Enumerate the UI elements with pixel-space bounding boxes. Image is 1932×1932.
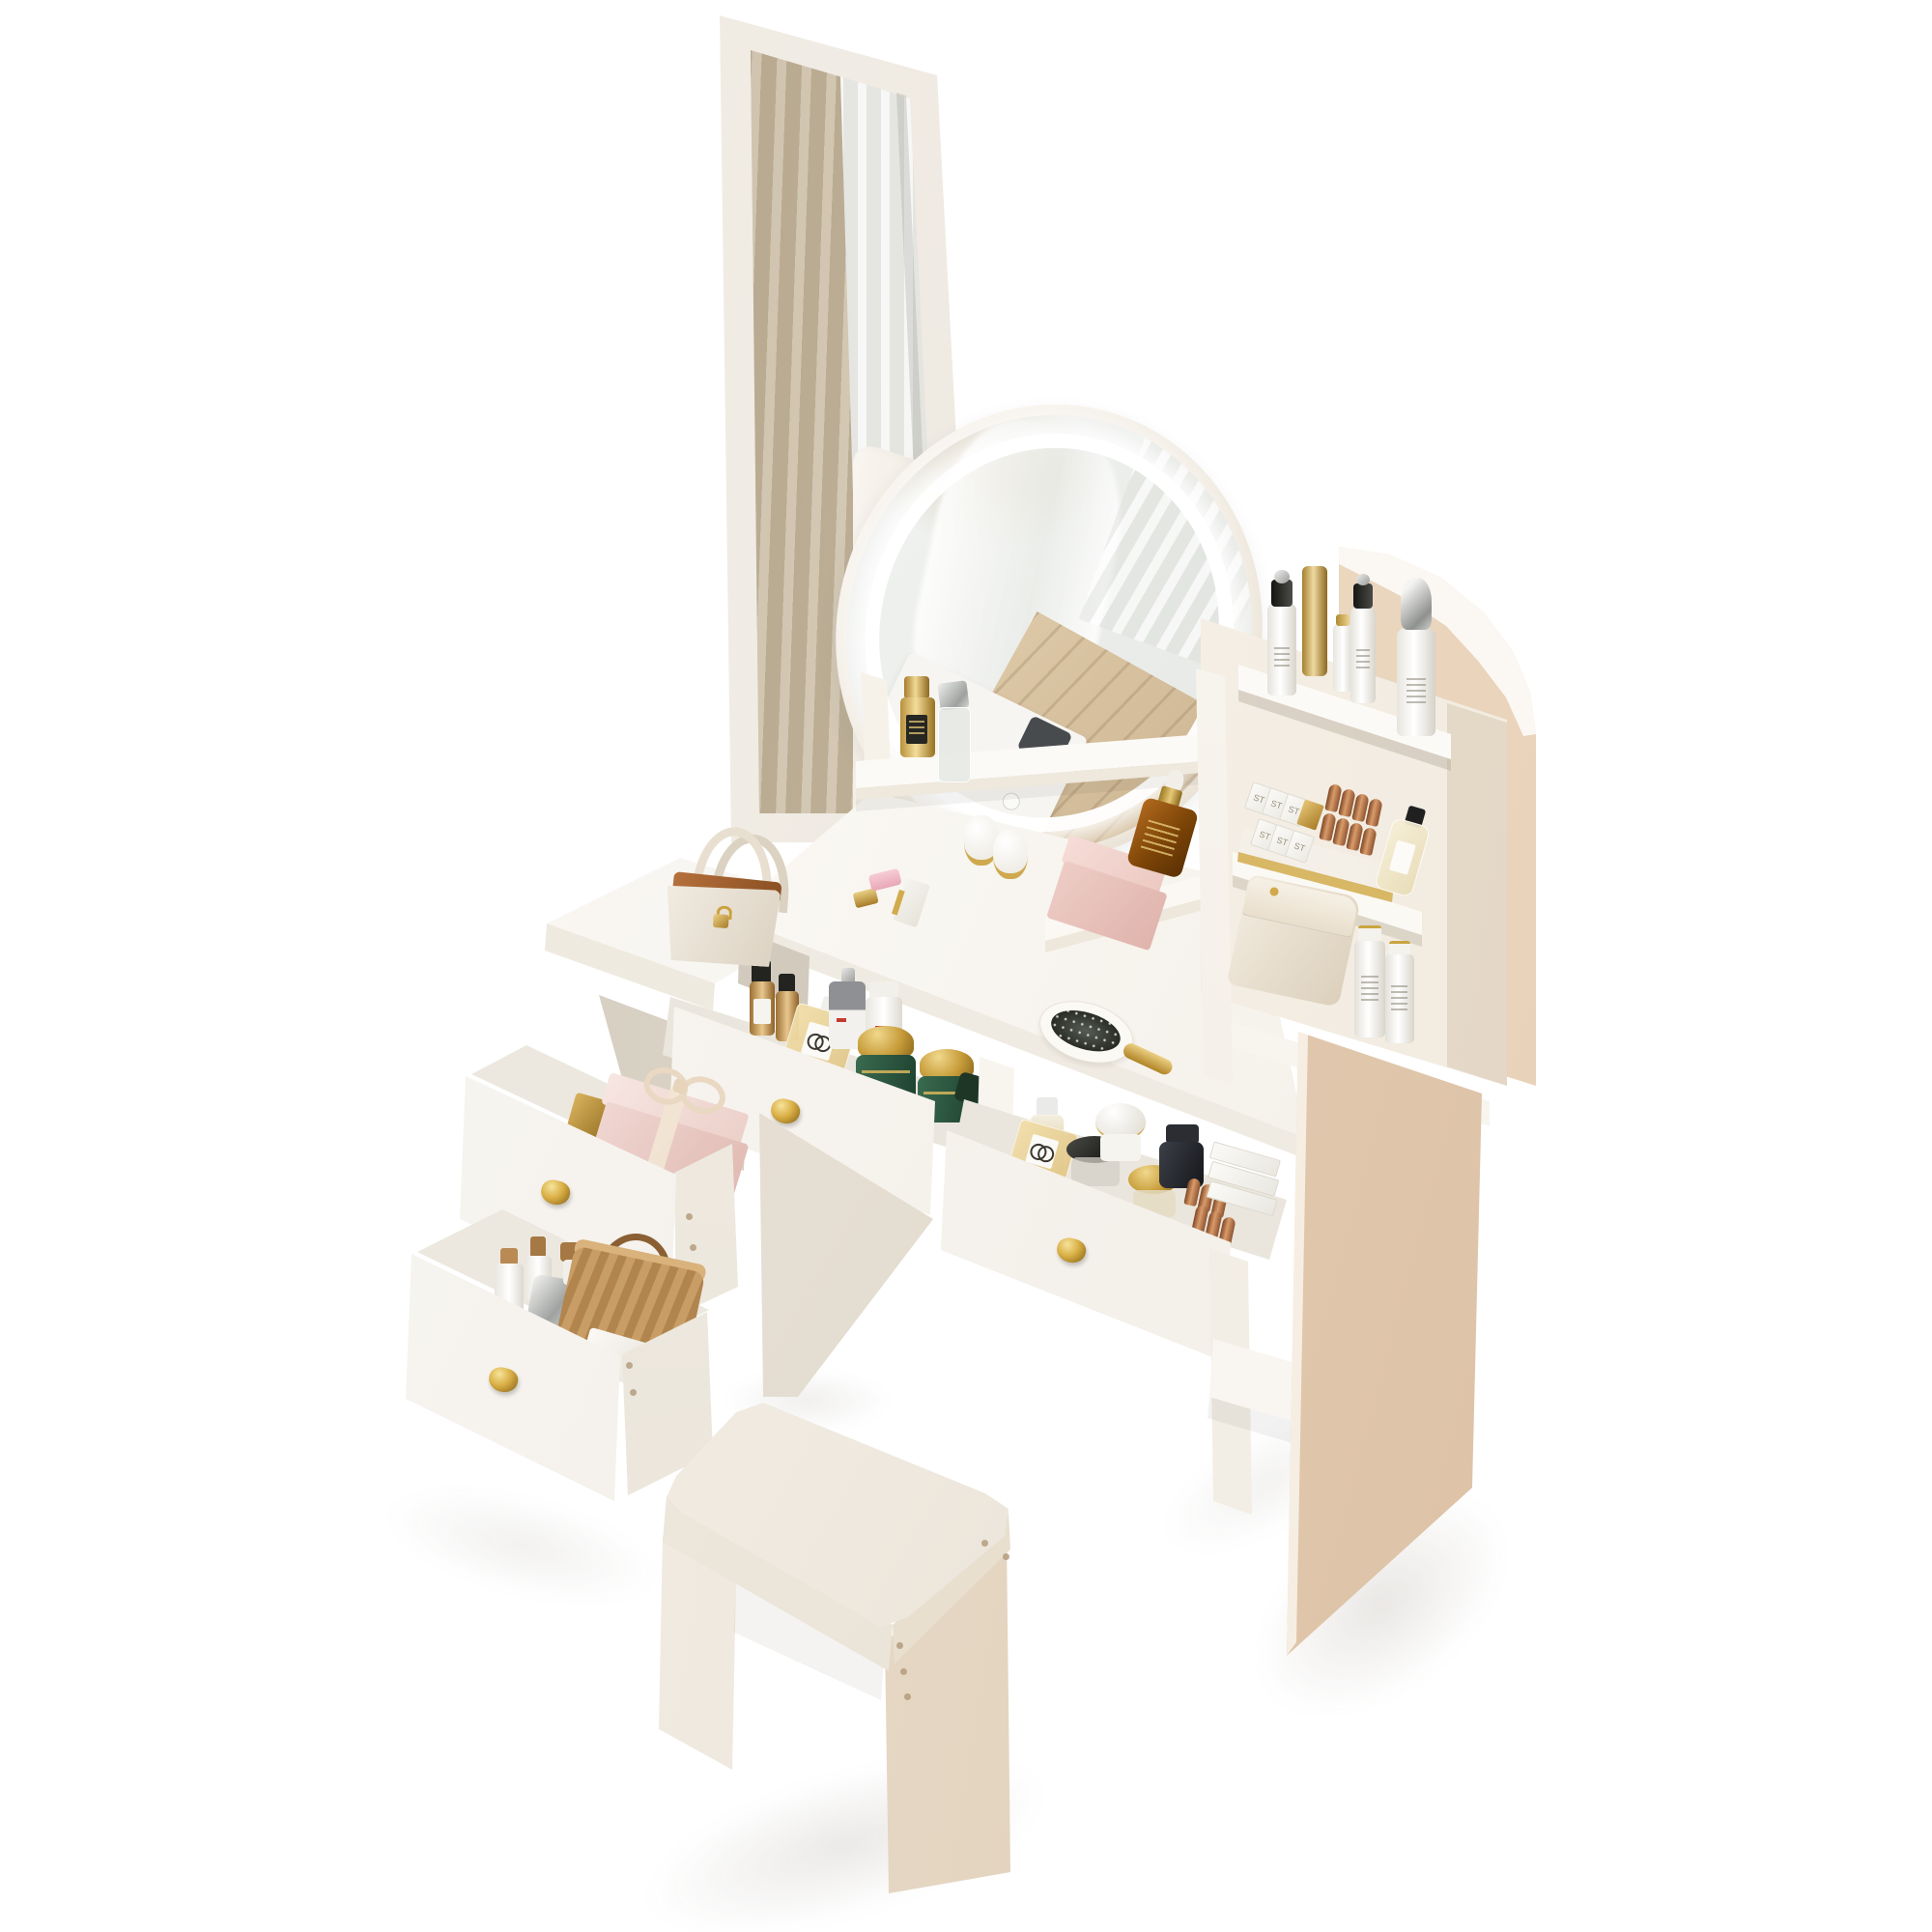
stool-frame-right bbox=[0, 0, 1932, 1932]
red-label-mark bbox=[837, 1018, 846, 1022]
cap bbox=[904, 676, 929, 699]
middle-drawer-front bbox=[0, 0, 1932, 1932]
left-upper-drawer-interior bbox=[0, 0, 1932, 1932]
leather-pouch bbox=[1226, 874, 1363, 1011]
lipstick-box-label: ST bbox=[1258, 829, 1271, 841]
left-cabinet-top-edge bbox=[0, 0, 1932, 1932]
floor-shadow-stool bbox=[606, 1708, 1085, 1932]
white-spray-bottle bbox=[1385, 941, 1414, 1043]
desk-left-cubby bbox=[0, 0, 1932, 1932]
right-drawer-knob bbox=[1054, 1236, 1088, 1266]
floor-shadow-center-leg bbox=[715, 1367, 898, 1435]
left-lower-drawer-knob bbox=[486, 1365, 520, 1396]
organizer-ledge bbox=[0, 0, 1932, 1932]
stool-right-leg bbox=[0, 0, 1932, 1932]
gold-dome-lid bbox=[858, 1026, 914, 1059]
body bbox=[1100, 1134, 1141, 1161]
black-pump-cap bbox=[1353, 583, 1373, 609]
desk-beige-side-panel bbox=[0, 0, 1932, 1932]
silver-dome-cap bbox=[1401, 578, 1432, 630]
shape bbox=[713, 914, 729, 928]
vanity-desk bbox=[0, 0, 1932, 1932]
left-upper-drawer-side bbox=[0, 0, 1932, 1932]
organizer-low-shelf-front bbox=[0, 0, 1932, 1932]
white-pump-bottle bbox=[1350, 607, 1376, 703]
mirror-curtain-reflection bbox=[0, 0, 1932, 1932]
lipstick-box-label: ST bbox=[1293, 840, 1306, 853]
screw bbox=[686, 1213, 693, 1220]
silver-cap-top bbox=[1274, 570, 1290, 583]
hutch-top-shelf bbox=[0, 0, 1932, 1932]
screw bbox=[981, 1540, 988, 1547]
label bbox=[906, 715, 927, 744]
left-upper-drawer-front bbox=[0, 0, 1932, 1932]
floor-shadow-left-drawers bbox=[358, 1457, 684, 1634]
silver-cap-top bbox=[1356, 574, 1370, 585]
hair-brush bbox=[1027, 986, 1179, 1099]
screw bbox=[1003, 1553, 1009, 1560]
screw bbox=[896, 1642, 903, 1649]
full-length-mirror bbox=[0, 0, 1932, 1932]
mirror-window-frame-line bbox=[0, 0, 1932, 1932]
hutch-beige-side-panel bbox=[0, 0, 1932, 1932]
shape bbox=[1361, 976, 1378, 1005]
brush-handle bbox=[1121, 1041, 1175, 1077]
right-drawer-open bbox=[0, 0, 1932, 1932]
cork bbox=[530, 1236, 546, 1258]
green-body bbox=[856, 1055, 916, 1103]
label bbox=[753, 999, 771, 1024]
gold-padlock bbox=[713, 905, 730, 929]
organizer-support bbox=[0, 0, 1932, 1932]
white-spray-bottle bbox=[1354, 925, 1385, 1037]
stretcher-shadow bbox=[0, 0, 1932, 1932]
organizer-ledge-shadow bbox=[0, 0, 1932, 1932]
pearl-ball bbox=[663, 1354, 688, 1379]
gold-serum-bottle bbox=[898, 676, 937, 757]
hutch-side-white-edge bbox=[0, 0, 1932, 1932]
white-pump-bottle bbox=[1267, 603, 1296, 696]
stool-cushion bbox=[0, 0, 1932, 1932]
body bbox=[495, 1264, 524, 1318]
lipstick-box-label: ST bbox=[1269, 798, 1283, 810]
pink-gift-box bbox=[580, 1050, 769, 1220]
screw bbox=[904, 1693, 911, 1700]
interlocked-cc-logo bbox=[1029, 1141, 1055, 1161]
gold-ring-cap bbox=[1336, 614, 1350, 626]
middle-drawer-knob bbox=[768, 1096, 802, 1127]
lipstick-tray bbox=[0, 0, 1932, 1932]
floor-shadow-beige-panel bbox=[1192, 1427, 1570, 1781]
stool-underseat-shadow bbox=[0, 0, 1932, 1932]
full-length-mirror-glass bbox=[0, 0, 1932, 1932]
hutch-interior bbox=[0, 0, 1932, 1932]
lipstick-box-label: ST bbox=[1252, 792, 1265, 805]
stool-left-leg bbox=[0, 0, 1932, 1932]
shape bbox=[909, 721, 924, 738]
storage-hutch bbox=[0, 0, 1932, 1932]
mirror-window-reflection bbox=[0, 0, 1932, 1932]
gold-line bbox=[862, 1070, 910, 1073]
desktop-front-edge bbox=[0, 0, 1932, 1932]
gold-cylinder-bottle bbox=[1302, 566, 1327, 676]
screw bbox=[1229, 1298, 1236, 1305]
left-upper-drawer-knob bbox=[538, 1178, 572, 1208]
organizer-ledge-front bbox=[0, 0, 1932, 1932]
shape bbox=[1356, 649, 1370, 668]
left-lower-drawer-side bbox=[0, 0, 1932, 1932]
cork-cap-bottle bbox=[493, 1248, 526, 1318]
screw bbox=[626, 1362, 633, 1369]
middle-drawer-interior bbox=[0, 0, 1932, 1932]
white-bottle-silver-dome bbox=[1397, 628, 1435, 736]
full-length-mirror-frame bbox=[0, 0, 1932, 1932]
lipstick-box-label: ST bbox=[1275, 835, 1289, 847]
shape bbox=[1391, 985, 1407, 1012]
hutch-middle-shelf-shadow bbox=[0, 0, 1932, 1932]
desk-organizer bbox=[0, 0, 1932, 1932]
left-cabinet-top bbox=[0, 0, 1932, 1932]
screw bbox=[900, 1668, 907, 1675]
left-lower-drawer-front bbox=[0, 0, 1932, 1932]
desk-bottom-stretcher bbox=[0, 0, 1932, 1932]
hutch-bottom-shelf bbox=[0, 0, 1932, 1932]
white-gold-band-jar bbox=[993, 829, 1028, 879]
clear-silver-cap-bottle bbox=[935, 682, 972, 781]
hutch-middle-shelf bbox=[0, 0, 1932, 1932]
left-side-cabinet bbox=[0, 0, 1932, 1932]
right-drawer-front bbox=[0, 0, 1932, 1932]
drawer-divider-board bbox=[0, 0, 1932, 1932]
shape bbox=[1274, 647, 1290, 668]
lipstick-tray-gold-rim bbox=[0, 0, 1932, 1932]
organizer-low-shelf bbox=[0, 0, 1932, 1932]
perfume-bottle bbox=[1374, 802, 1435, 897]
middle-drawer-open bbox=[0, 0, 1932, 1932]
vanity-product-photo: ST ST ST ST ST ST bbox=[0, 0, 1932, 1932]
black-pump-cap bbox=[1271, 580, 1293, 607]
beige-panel-white-edge bbox=[0, 0, 1932, 1932]
body bbox=[938, 707, 971, 782]
cap bbox=[1166, 1124, 1199, 1144]
stool bbox=[0, 0, 1932, 1932]
floor-shadow-desk-right bbox=[1130, 1374, 1401, 1591]
left-cabinet-cavity bbox=[0, 0, 1932, 1932]
amber-bottle-black-cap bbox=[748, 960, 777, 1036]
glass-body bbox=[1133, 1190, 1176, 1217]
hutch-left-post bbox=[0, 0, 1932, 1932]
desk-center-leg bbox=[0, 0, 1932, 1932]
shape bbox=[1406, 678, 1426, 703]
screw bbox=[690, 1244, 696, 1251]
screw bbox=[1225, 1275, 1232, 1282]
right-drawer-interior bbox=[0, 0, 1932, 1932]
screw bbox=[630, 1389, 637, 1396]
hutch-top-shelf-shadow bbox=[0, 0, 1932, 1932]
desk-inner-right-leg bbox=[0, 0, 1932, 1932]
small-white-bottle bbox=[1333, 624, 1352, 692]
mini-handbag bbox=[660, 823, 797, 973]
cap bbox=[779, 974, 795, 993]
led-mirror bbox=[794, 364, 1305, 900]
cap bbox=[937, 680, 969, 710]
stool-frame-front bbox=[0, 0, 1932, 1932]
white-dome-jar bbox=[1092, 1103, 1150, 1163]
desktop-surface bbox=[0, 0, 1932, 1932]
left-lower-drawer-interior bbox=[0, 0, 1932, 1932]
hutch-interior-shadow bbox=[0, 0, 1932, 1932]
green-gold-jar bbox=[854, 1026, 920, 1105]
